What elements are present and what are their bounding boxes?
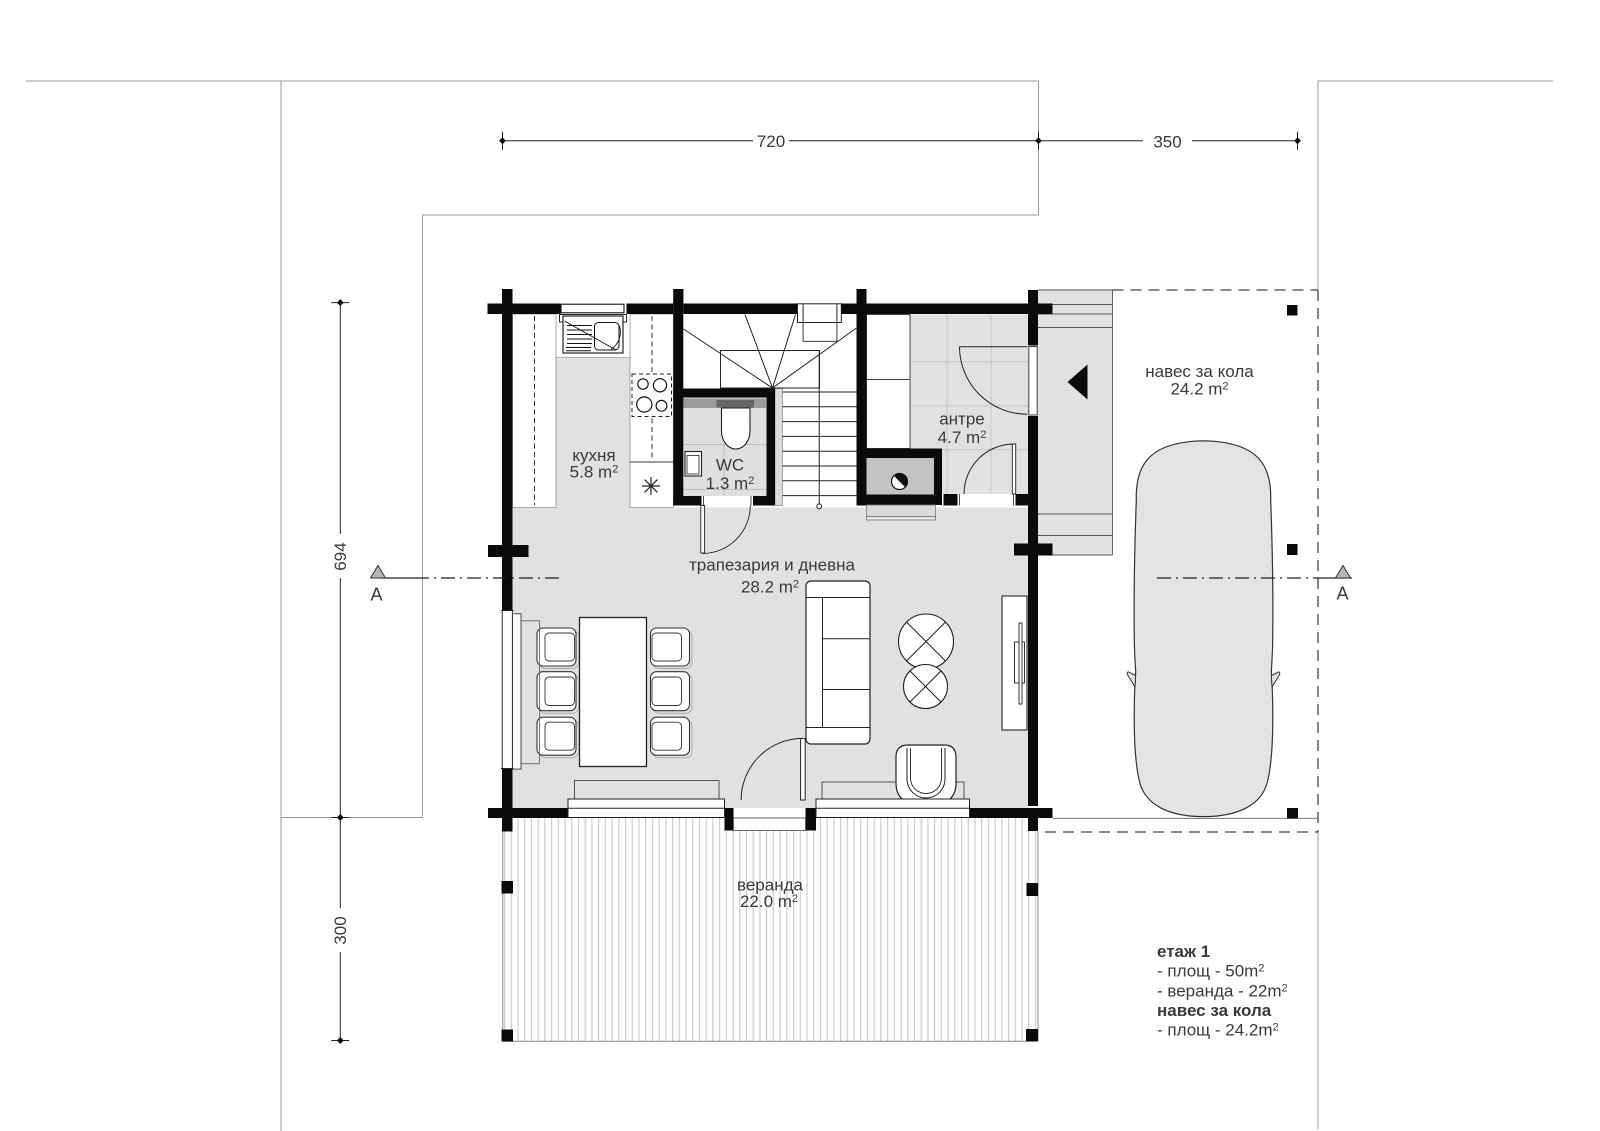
svg-text:WC: WC xyxy=(716,456,744,475)
svg-text:- веранда - 22m2: - веранда - 22m2 xyxy=(1157,981,1288,1000)
svg-text:720: 720 xyxy=(757,132,785,151)
svg-text:A: A xyxy=(370,585,382,605)
svg-text:- площ - 24.2m2: - площ - 24.2m2 xyxy=(1157,1021,1279,1040)
svg-text:етаж 1: етаж 1 xyxy=(1157,942,1210,961)
svg-text:A: A xyxy=(1336,584,1348,604)
svg-text:навес за кола: навес за кола xyxy=(1157,1001,1272,1020)
svg-text:1.3 m2: 1.3 m2 xyxy=(706,474,755,493)
svg-text:навес за кола: навес за кола xyxy=(1145,362,1254,381)
svg-text:350: 350 xyxy=(1153,133,1181,152)
svg-text:24.2 m2: 24.2 m2 xyxy=(1170,380,1228,399)
svg-text:4.7 m2: 4.7 m2 xyxy=(938,428,987,447)
svg-text:22.0 m2: 22.0 m2 xyxy=(740,892,798,911)
svg-text:300: 300 xyxy=(331,916,350,944)
svg-text:28.2 m2: 28.2 m2 xyxy=(741,578,799,597)
svg-text:антре: антре xyxy=(939,410,985,429)
svg-text:- площ - 50m2: - площ - 50m2 xyxy=(1157,962,1264,981)
svg-text:5.8 m2: 5.8 m2 xyxy=(570,463,619,482)
svg-text:694: 694 xyxy=(331,542,350,570)
svg-text:трапезария и дневна: трапезария и дневна xyxy=(689,556,856,575)
